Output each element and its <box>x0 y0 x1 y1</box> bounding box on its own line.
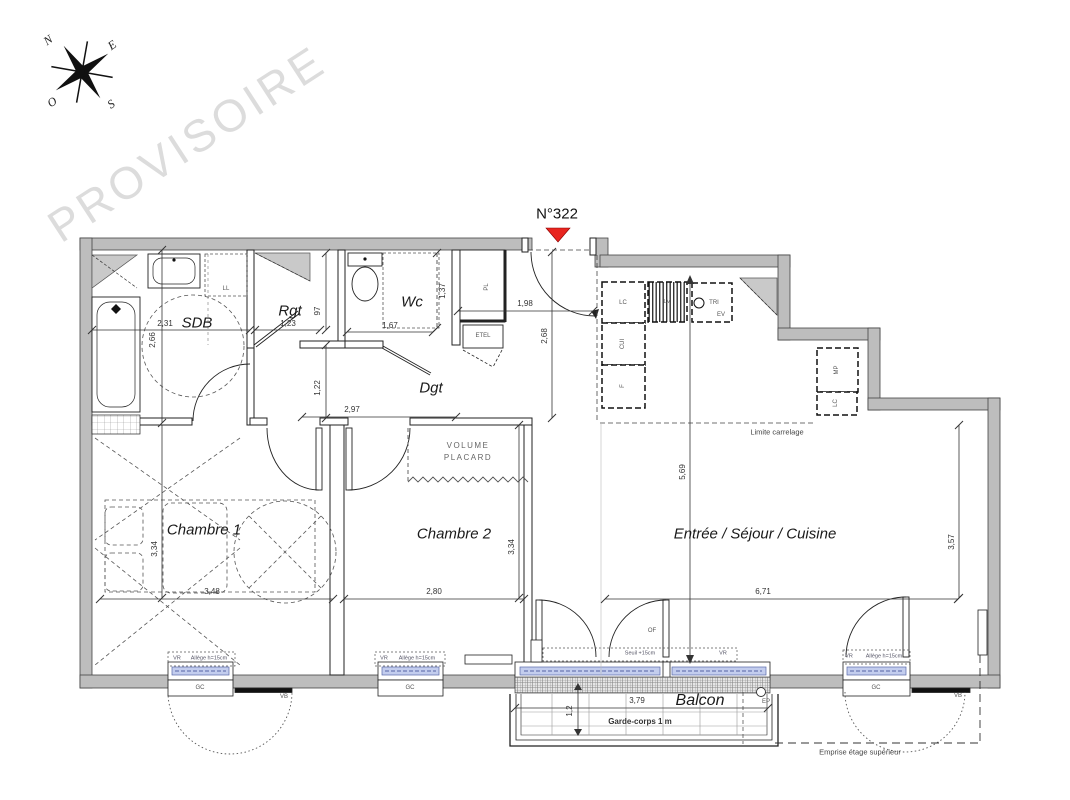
label-gc-sejour: GC <box>872 685 881 691</box>
dim-wc-depth: 1,37 <box>439 283 447 299</box>
dim-wc-width: 1,67 <box>382 322 398 330</box>
toilet-bowl <box>352 267 378 301</box>
dim-chambre2-height: 3,34 <box>508 539 516 555</box>
label-lv: LV <box>664 299 671 305</box>
label-of: OF <box>648 628 656 634</box>
dim-entry-width: 1,98 <box>517 300 533 308</box>
bed <box>163 503 227 593</box>
label-etel: ETEL <box>475 333 490 339</box>
label-lc2: LC <box>833 399 839 407</box>
room-label-balcon: Balcon <box>676 693 725 709</box>
dim-rgt-depth: 97 <box>314 307 322 316</box>
room-label-chambre2: Chambre 2 <box>417 527 491 542</box>
label-ev: EV <box>717 312 725 318</box>
room-label-chambre1: Chambre 1 <box>167 523 241 538</box>
label-vr-bay: VR <box>719 651 727 657</box>
shutter-bar <box>912 688 970 693</box>
dim-dgt-height: 1,22 <box>314 380 322 396</box>
dim-balcon-depth: 1,2 <box>566 705 574 716</box>
room-label-rgt: Rgt <box>278 304 301 319</box>
plan-linework <box>0 0 1070 800</box>
ep-pipe-icon <box>757 688 766 697</box>
garde-corps-label: Garde-corps 1 m <box>608 718 672 726</box>
dim-dgt-width: 2,97 <box>344 406 360 414</box>
dim-chambre1-height: 3,34 <box>151 541 159 557</box>
label-vr-chambre2: VR <box>380 656 388 662</box>
room-label-sdb: SDB <box>182 316 213 331</box>
radiator <box>531 640 542 662</box>
label-f: F <box>620 384 626 388</box>
label-vr-sejour: VR <box>845 654 853 660</box>
label-gc-chambre1: GC <box>196 685 205 691</box>
label-allege-chambre1: Allège h=15cm <box>191 656 228 662</box>
dim-balcon-width: 3,79 <box>629 697 645 705</box>
room-label-sejour: Entrée / Séjour / Cuisine <box>674 527 837 542</box>
room-label-dgt: Dgt <box>419 381 442 396</box>
radiator <box>978 610 987 655</box>
emprise-label: Emprise étage supérieur <box>819 748 901 756</box>
limite-carrelage-label: Limite carrelage <box>750 428 803 436</box>
floor-plan: PROVISOIRE <box>0 0 1070 800</box>
dim-sejour-height: 5,69 <box>679 464 687 480</box>
dim-entry-height: 2,68 <box>541 328 549 344</box>
bathroom-fixtures <box>92 254 247 434</box>
entry-closet <box>460 250 505 367</box>
balcony-slab <box>515 677 770 693</box>
apartment-number: N°322 <box>536 207 578 222</box>
volume-placard-line1: VOLUME <box>447 442 490 450</box>
shutter-bar <box>235 688 292 693</box>
dim-chambre1-width: 3,48 <box>204 588 220 596</box>
apartment-marker-triangle <box>546 228 570 242</box>
label-mp: MP <box>834 366 840 375</box>
label-gc-chambre2: GC <box>406 685 415 691</box>
label-ll: LL <box>223 286 230 292</box>
dim-sejour-right-height: 3,57 <box>948 534 956 550</box>
volume-placard-line2: PLACARD <box>444 454 492 462</box>
wc-fixtures <box>348 253 439 328</box>
nightstand <box>105 507 143 545</box>
label-allege-chambre2: Allège h=15cm <box>399 656 436 662</box>
label-cui: CUI <box>620 339 626 349</box>
tri-icon <box>694 298 704 308</box>
label-tri: TRI <box>709 300 719 306</box>
label-seuil: Seuil +15cm <box>625 651 655 657</box>
label-pl: PL <box>484 283 490 290</box>
shutter-swing <box>168 692 292 754</box>
dim-sdb-width: 2,31 <box>157 320 173 328</box>
label-vb-right: VB <box>954 693 962 699</box>
dim-sejour-width: 6,71 <box>755 588 771 596</box>
dim-sdb-height: 2,66 <box>149 332 157 348</box>
kitchen-units <box>602 282 858 415</box>
dim-rgt-width: 1,23 <box>280 320 296 328</box>
chambre1-furniture <box>95 438 336 665</box>
room-label-wc: Wc <box>401 295 423 310</box>
label-allege-sejour: Allège h=15cm <box>866 654 903 660</box>
nightstand <box>105 553 143 591</box>
label-ep: EP <box>762 699 770 705</box>
label-vr-chambre1: VR <box>173 656 181 662</box>
label-lc: LC <box>619 300 627 306</box>
radiator <box>465 655 512 664</box>
dim-chambre2-width: 2,80 <box>426 588 442 596</box>
label-vb-left: VB <box>280 694 288 700</box>
turning-circle <box>142 295 244 397</box>
